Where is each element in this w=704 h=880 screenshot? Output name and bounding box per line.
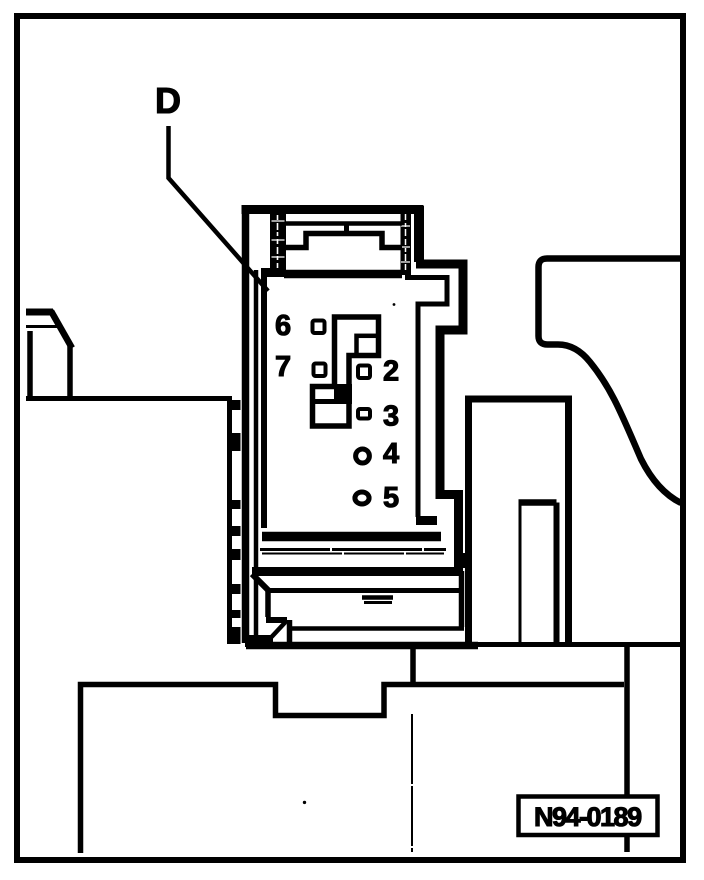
svg-text:6: 6 bbox=[275, 310, 291, 342]
svg-text:D: D bbox=[155, 80, 181, 121]
svg-text:4: 4 bbox=[383, 438, 399, 470]
svg-text:7: 7 bbox=[275, 351, 291, 383]
svg-text:3: 3 bbox=[383, 401, 399, 433]
svg-text:N94-0189: N94-0189 bbox=[534, 802, 642, 832]
svg-text:2: 2 bbox=[383, 356, 399, 388]
svg-text:5: 5 bbox=[383, 482, 399, 514]
